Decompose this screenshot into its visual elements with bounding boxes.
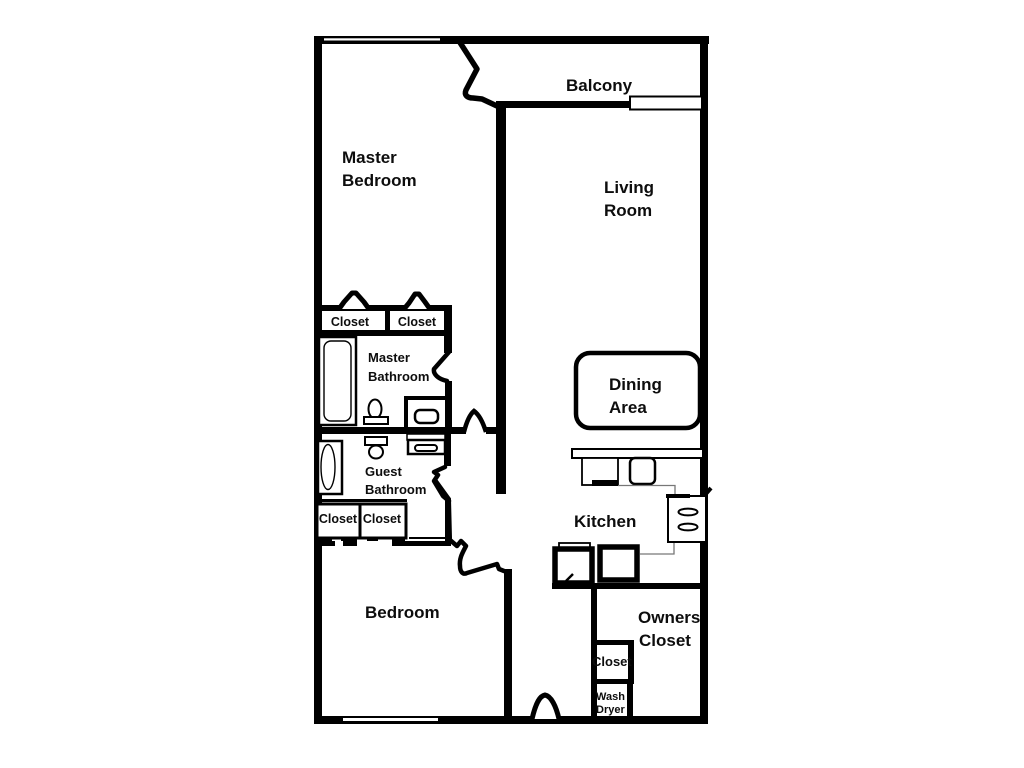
svg-text:Owners: Owners (638, 608, 700, 627)
svg-text:Closet: Closet (319, 512, 358, 526)
svg-text:Kitchen: Kitchen (574, 512, 636, 531)
svg-text:Closet: Closet (331, 315, 370, 329)
svg-text:Bathroom: Bathroom (368, 369, 429, 384)
svg-text:Room: Room (604, 201, 652, 220)
svg-text:Bedroom: Bedroom (342, 171, 417, 190)
svg-text:Closet: Closet (592, 654, 632, 669)
svg-text:Bathroom: Bathroom (365, 482, 426, 497)
svg-text:Wash: Wash (596, 691, 625, 703)
svg-text:Guest: Guest (365, 464, 403, 479)
svg-text:Dryer: Dryer (596, 704, 625, 716)
svg-text:Balcony: Balcony (566, 76, 633, 95)
svg-text:Living: Living (604, 178, 654, 197)
svg-text:Master: Master (368, 350, 410, 365)
svg-text:Master: Master (342, 148, 397, 167)
svg-text:Area: Area (609, 398, 647, 417)
svg-text:Closet: Closet (363, 512, 402, 526)
svg-text:Closet: Closet (639, 631, 691, 650)
svg-text:Closet: Closet (398, 315, 437, 329)
svg-text:Bedroom: Bedroom (365, 603, 440, 622)
svg-text:Dining: Dining (609, 375, 662, 394)
